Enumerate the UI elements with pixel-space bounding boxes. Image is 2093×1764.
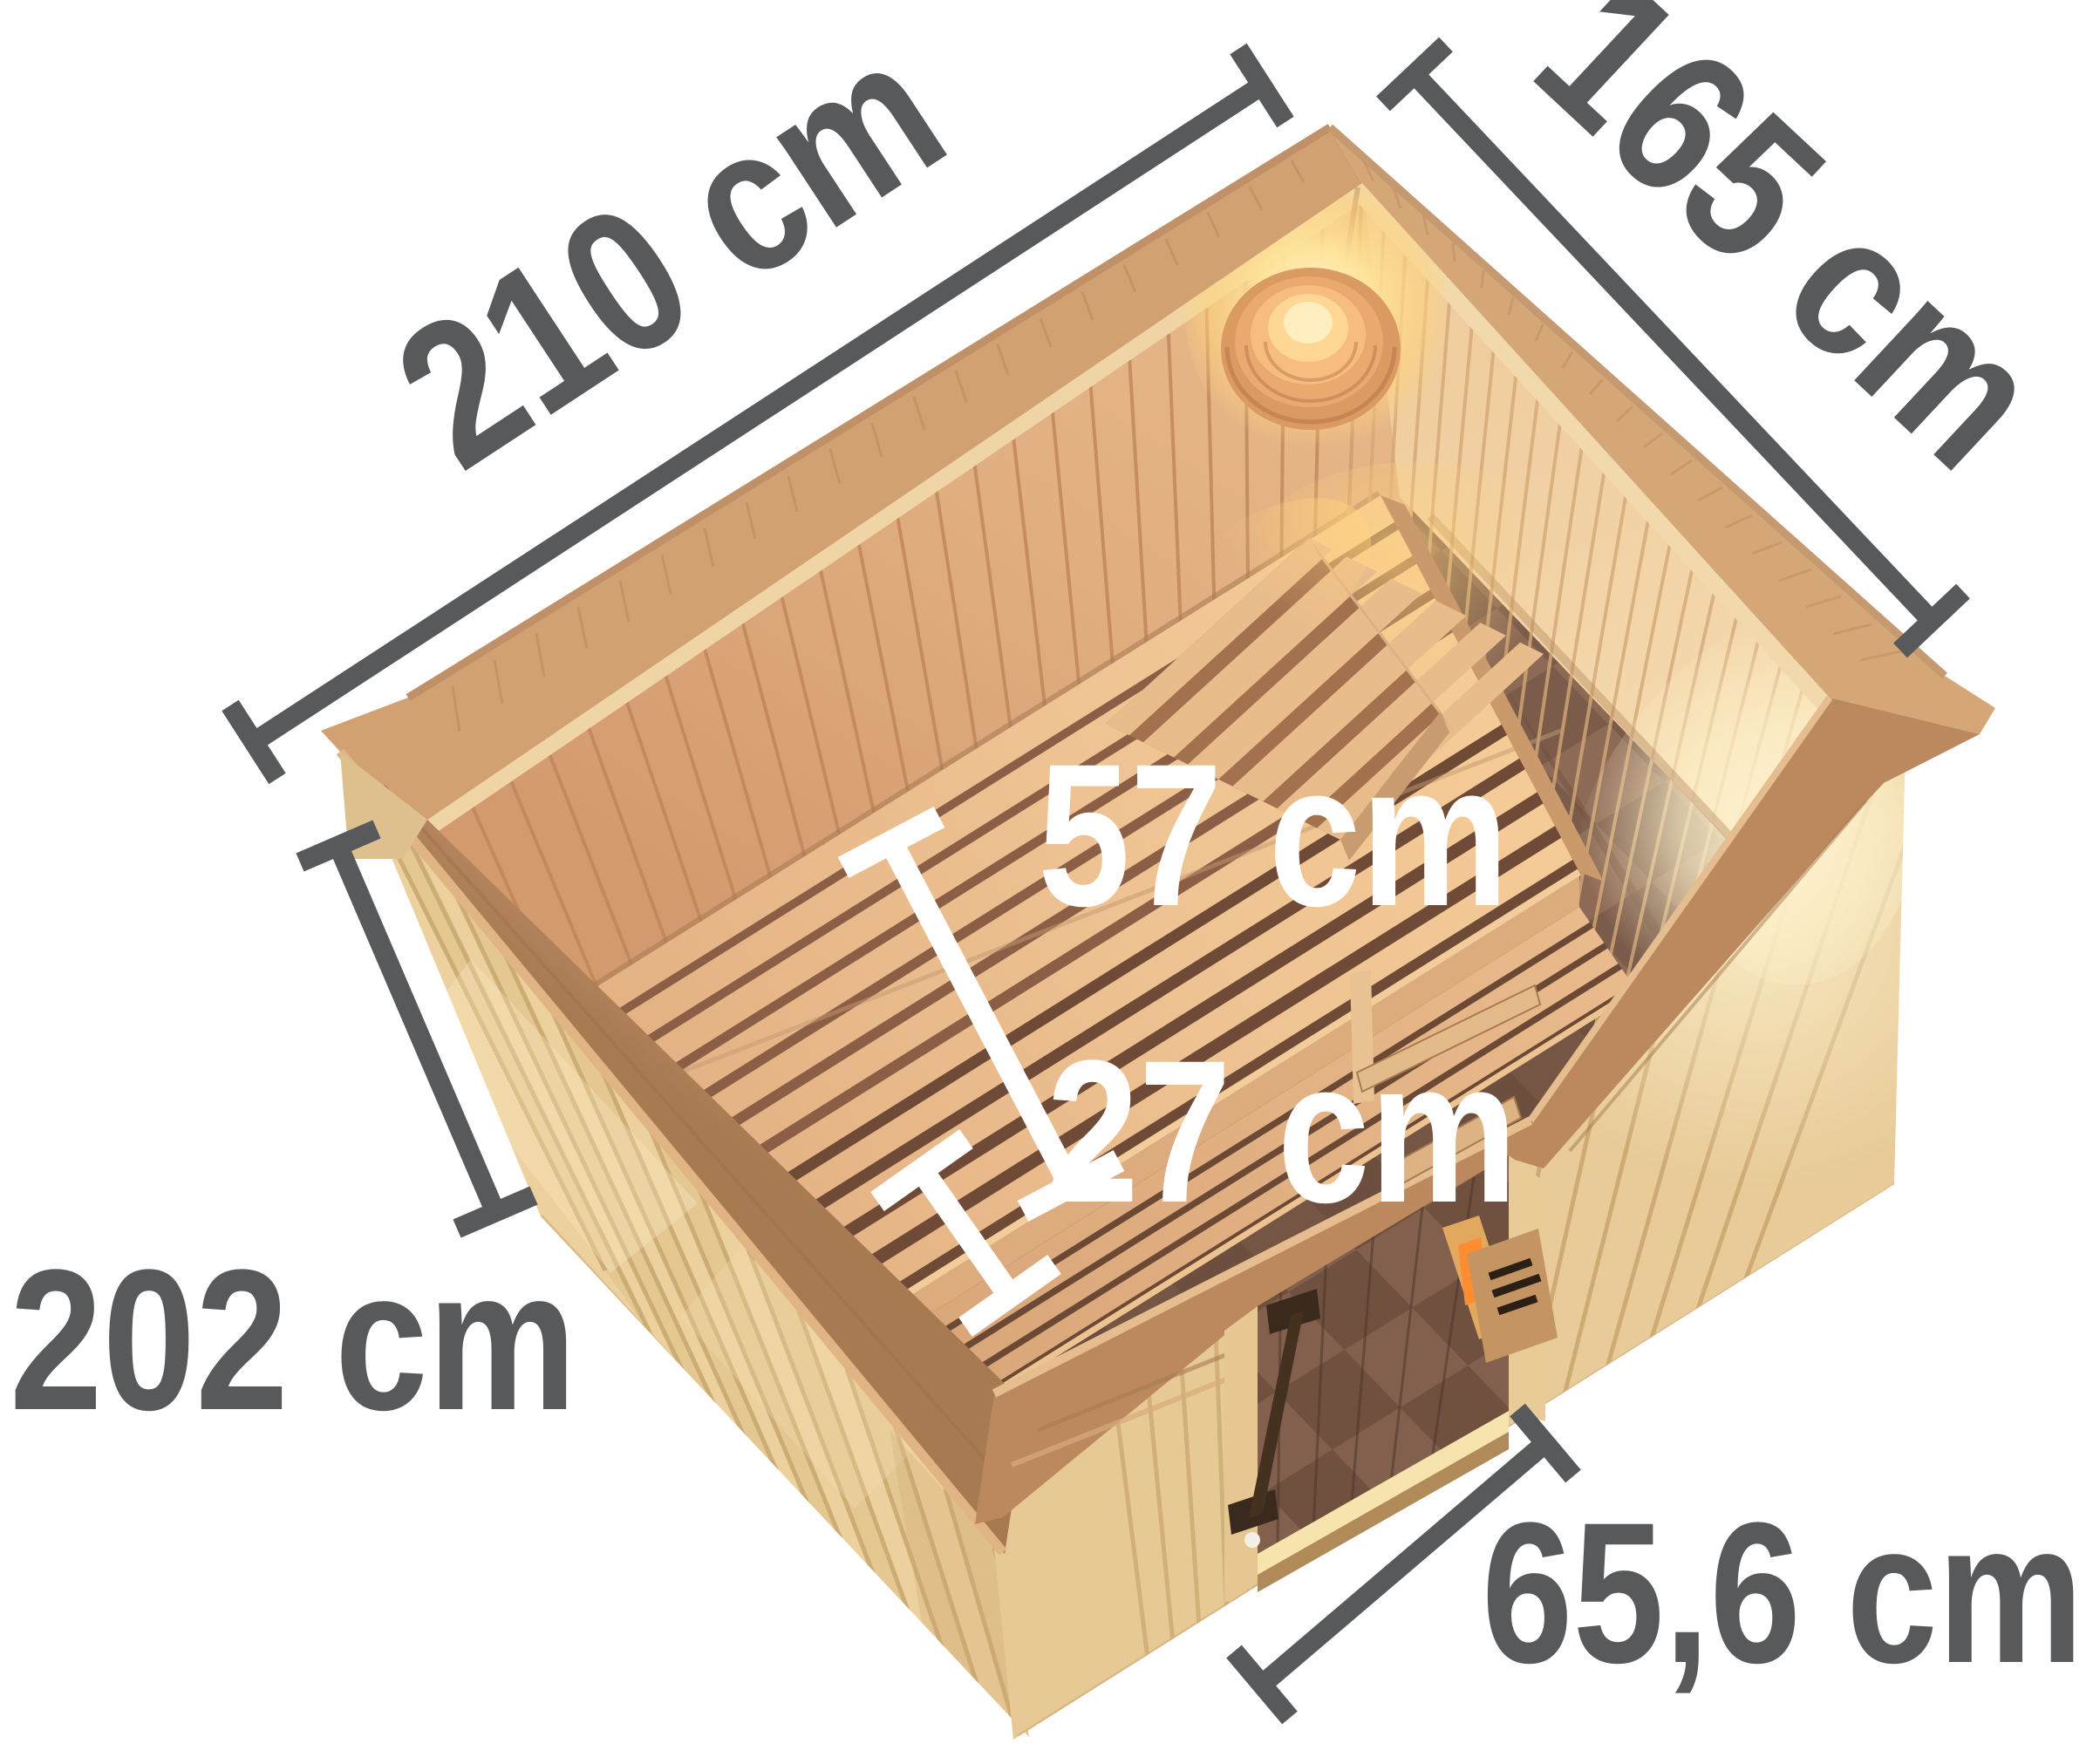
svg-text:27 cm: 27 cm [1046,1018,1517,1245]
svg-text:57 cm: 57 cm [1038,722,1509,949]
svg-text:202 cm: 202 cm [10,1228,576,1452]
svg-text:65,6 cm: 65,6 cm [1482,1481,2083,1705]
